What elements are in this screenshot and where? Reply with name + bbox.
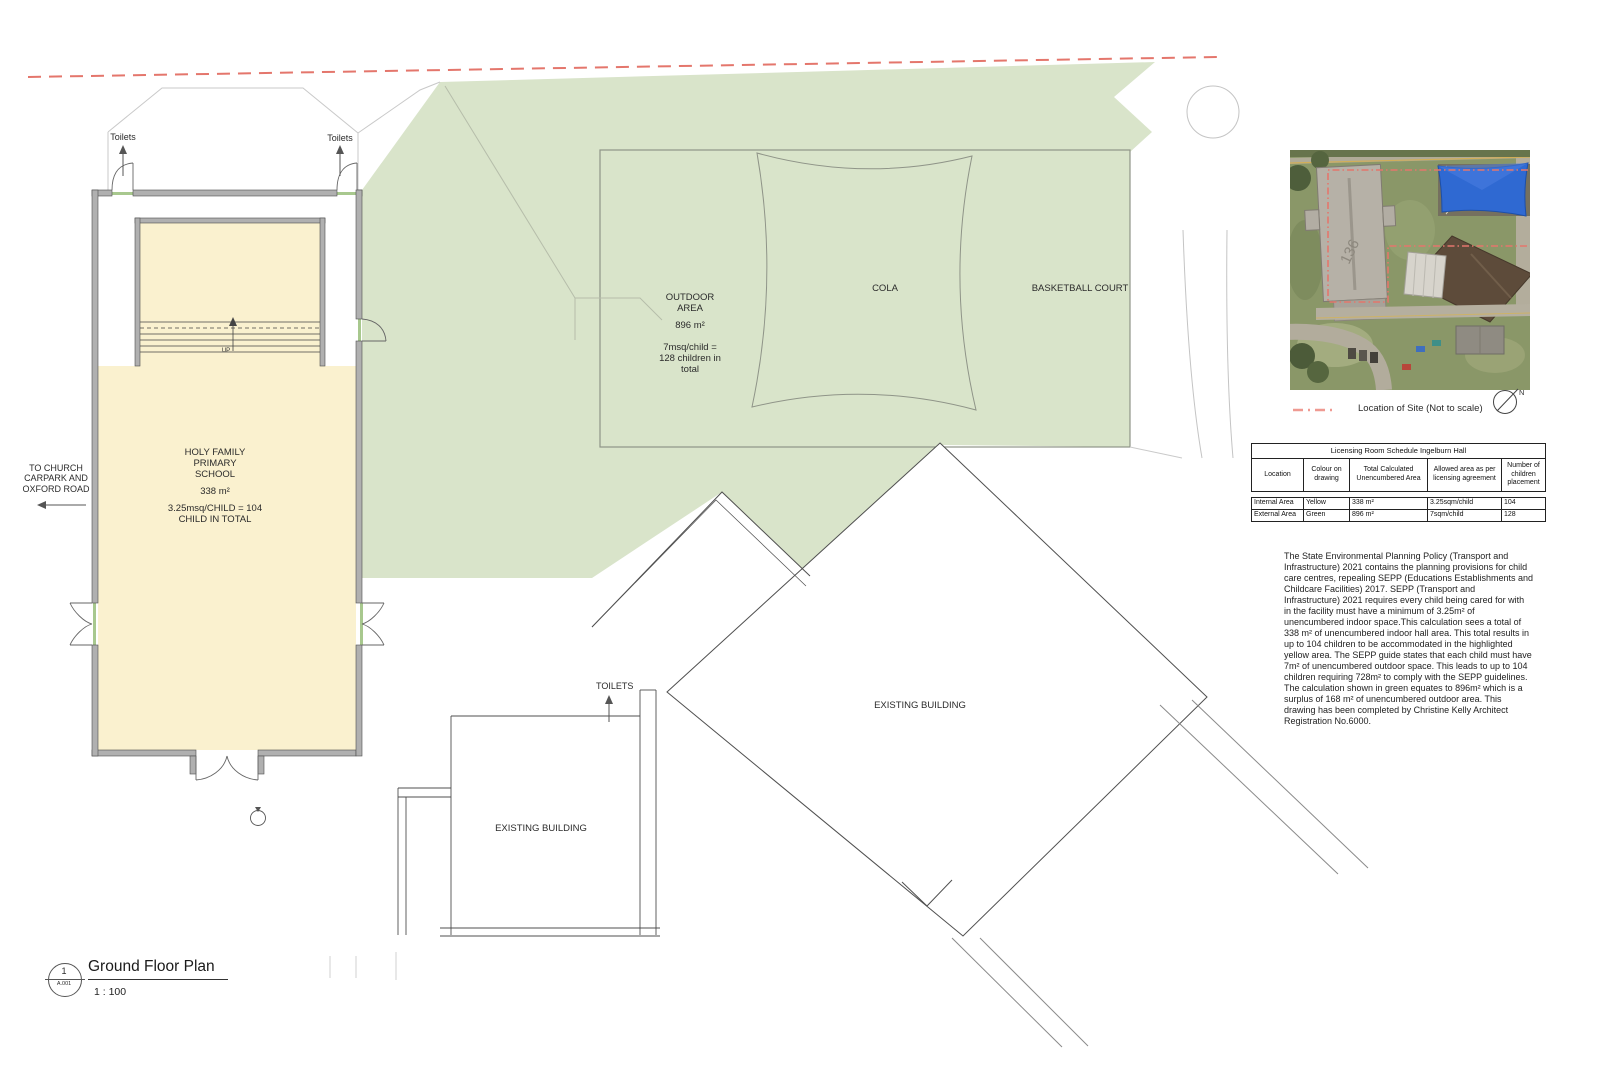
legend-line [1291, 402, 1339, 416]
drawing-scale: 1 : 100 [94, 986, 126, 998]
label-hall-calc: 3.25msq/CHILD = 104 CHILD IN TOTAL [140, 504, 290, 526]
label-outdoor-area: 896 m² [630, 321, 750, 332]
drawing-title: Ground Floor Plan [88, 958, 228, 980]
church-arrow [37, 501, 86, 509]
toilets-arrows [119, 145, 344, 176]
existing-building-lower-outline [398, 690, 660, 936]
north-compass: N [1492, 384, 1532, 418]
label-outdoor-title: OUTDOOR AREA [630, 293, 750, 315]
licensing-table-header: Licensing Room Schedule Ingelburn Hall L… [1251, 443, 1546, 492]
licensing-table: Licensing Room Schedule Ingelburn Hall L… [1251, 443, 1545, 522]
col-location: Location [1252, 459, 1304, 492]
up-label: UP [222, 348, 230, 354]
table-row: Internal Area Yellow 338 m² 3.25sqm/chil… [1252, 498, 1546, 510]
label-hall-area: 338 m² [140, 487, 290, 498]
col-children: Number of children placement [1502, 459, 1546, 492]
table-title: Licensing Room Schedule Ingelburn Hall [1252, 444, 1546, 459]
detail-marker-line [45, 979, 85, 980]
label-existing-building-upper: EXISTING BUILDING [845, 701, 995, 712]
outdoor-area-green [362, 62, 1155, 578]
label-church-note: TO CHURCH CARPARK AND OXFORD ROAD [20, 463, 92, 494]
label-basketball-court: BASKETBALL COURT [1000, 284, 1160, 295]
label-toilets-left: Toilets [103, 132, 143, 142]
floor-plan-sheet: UP [0, 0, 1620, 1080]
label-hall-name: HOLY FAMILY PRIMARY SCHOOL [140, 448, 290, 481]
detail-number: 1 [48, 966, 80, 976]
aerial-photo: 136 [1290, 150, 1530, 390]
sheet-number: A.001 [48, 981, 80, 987]
label-toilets-lower: TOILETS [596, 681, 646, 691]
sepp-notes: The State Environmental Planning Policy … [1284, 551, 1533, 727]
col-allowed-area: Allowed area as per licensing agreement [1428, 459, 1502, 492]
label-toilets-right: Toilets [320, 133, 360, 143]
toilets-lower-arrow [605, 695, 613, 722]
label-existing-building-lower: EXISTING BUILDING [466, 824, 616, 835]
licensing-table-body: Internal Area Yellow 338 m² 3.25sqm/chil… [1251, 497, 1546, 522]
table-row: External Area Green 896 m² 7sqm/child 12… [1252, 510, 1546, 522]
label-outdoor-calc: 7msq/child = 128 children in total [630, 343, 750, 376]
col-colour: Colour on drawing [1304, 459, 1350, 492]
aerial-photo-graphic: 136 [1290, 150, 1530, 390]
north-label: N [1519, 388, 1524, 397]
label-cola: COLA [845, 284, 925, 295]
downpipe-symbol [251, 811, 266, 826]
col-total-area: Total Calculated Unencumbered Area [1350, 459, 1428, 492]
